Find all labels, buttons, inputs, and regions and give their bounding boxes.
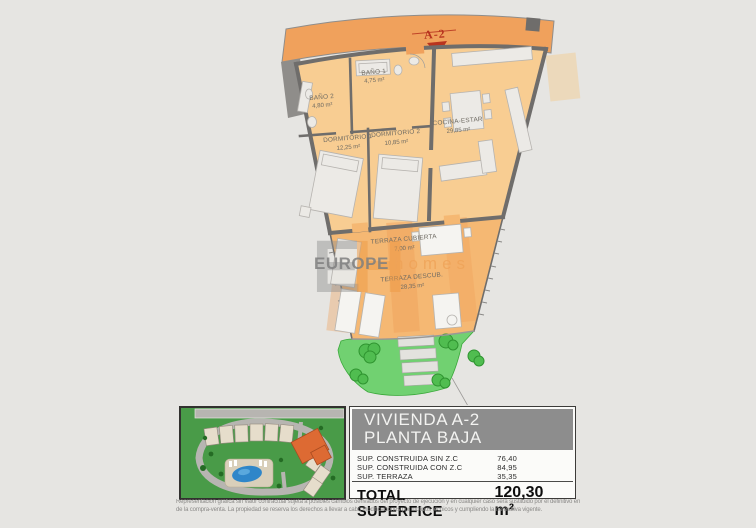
band-wall-chunk: [525, 17, 540, 31]
info-panel: VIVIENDA A-2 PLANTA BAJA SUP. CONSTRUIDA…: [349, 406, 576, 499]
surface-label: SUP. CONSTRUIDA SIN Z.C: [357, 454, 477, 463]
surface-label: SUP. CONSTRUIDA CON Z.C: [357, 463, 477, 472]
info-title-line2: PLANTA BAJA: [364, 429, 573, 447]
disclaimer: Representación gráfica sin valor contrac…: [176, 499, 636, 514]
surface-row: SUP. CONSTRUIDA SIN Z.C 76,40: [357, 454, 573, 463]
floor-plan: A-2: [0, 0, 756, 405]
disclaimer-line2: de la compra-venta. La propiedad se rese…: [176, 507, 636, 515]
neighbour-right-ghost: [546, 53, 581, 102]
site-plan-thumbnail: [179, 406, 346, 500]
boundary-line: [452, 378, 468, 405]
watermark-brand-primary: EUROPE: [314, 254, 389, 273]
top-road: [195, 409, 344, 418]
garden: [338, 331, 484, 405]
surface-value: 84,95: [477, 463, 517, 472]
surface-label: SUP. TERRAZA: [357, 472, 477, 481]
surface-rows: SUP. CONSTRUIDA SIN Z.C 76,40 SUP. CONST…: [352, 450, 573, 481]
site-plan-drawing: [181, 408, 344, 498]
pool-area: [225, 459, 273, 487]
disclaimer-line1: Representación gráfica sin valor contrac…: [176, 499, 636, 507]
info-panel-header: VIVIENDA A-2 PLANTA BAJA: [352, 409, 573, 450]
surface-row: SUP. TERRAZA 35,35: [357, 472, 573, 481]
surface-value: 35,35: [477, 472, 517, 481]
info-title-line1: VIVIENDA A-2: [364, 411, 573, 429]
unit-marker-label: A-2: [424, 26, 447, 41]
watermark-brand-secondary: homes: [394, 254, 470, 273]
surface-row: SUP. CONSTRUIDA CON Z.C 84,95: [357, 463, 573, 472]
floorplan-page: A-2: [0, 0, 756, 528]
surface-value: 76,40: [477, 454, 517, 463]
